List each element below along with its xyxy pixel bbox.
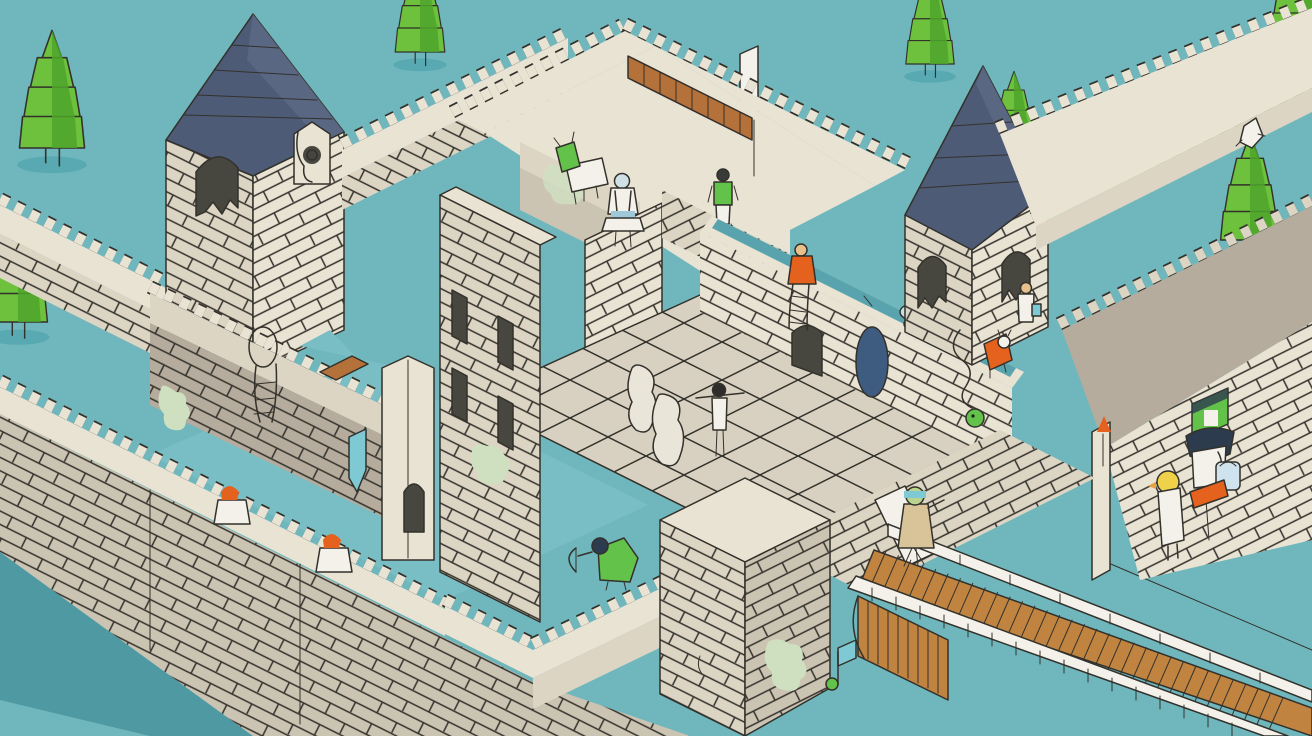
keep-annex (440, 187, 556, 622)
pine-tree-topcenter (394, 0, 447, 71)
corner-turret (382, 356, 434, 560)
gate-pillar (1092, 422, 1110, 580)
gate-house (660, 478, 830, 736)
castle-scene: Stylized flat-color castle keep with moa… (0, 0, 1312, 736)
illustration-stage: Isometric castle illustration Stylized f… (0, 0, 1312, 736)
tower-shrine[interactable] (294, 122, 330, 184)
